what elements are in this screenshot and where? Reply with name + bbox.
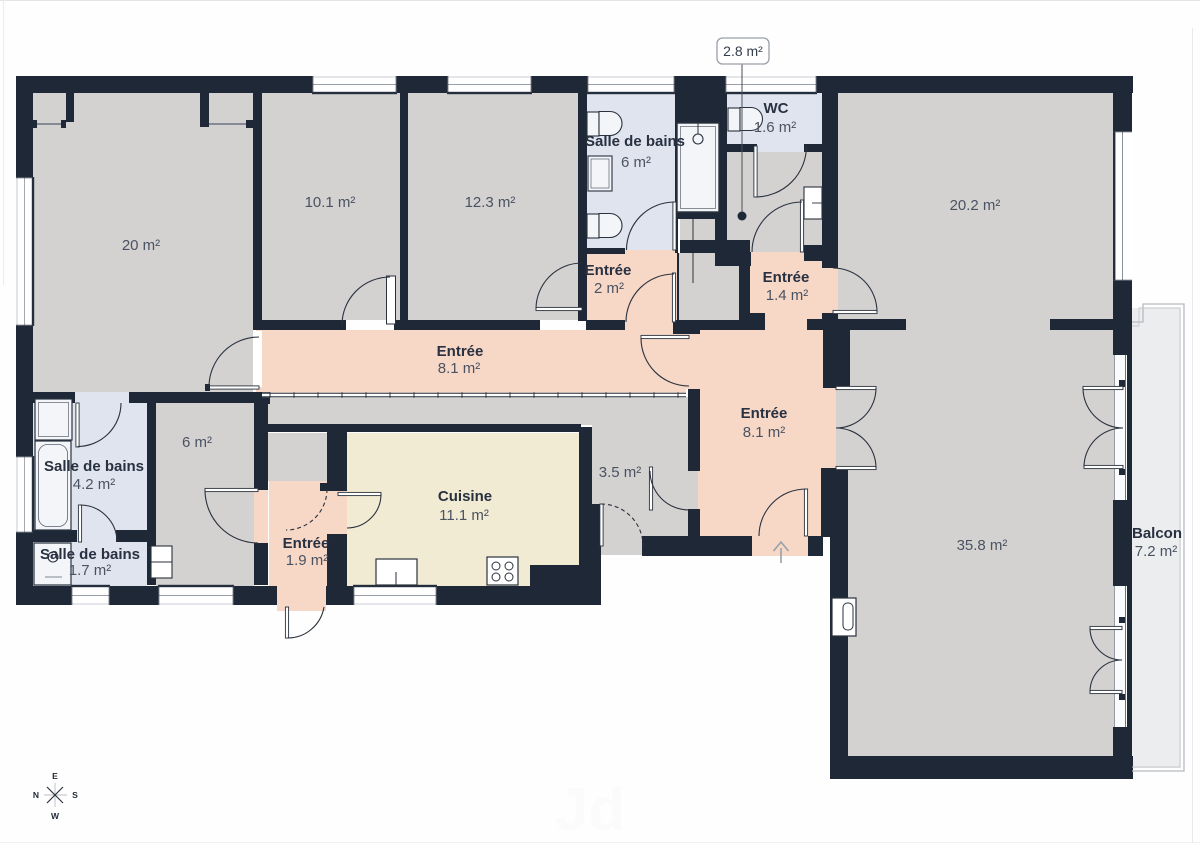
svg-text:N: N (33, 790, 39, 800)
svg-text:Salle de bains: Salle de bains (585, 133, 685, 150)
svg-text:1.4 m²: 1.4 m² (766, 287, 809, 304)
svg-text:Entrée: Entrée (763, 269, 810, 286)
svg-text:4.2 m²: 4.2 m² (73, 476, 116, 493)
svg-text:Cuisine: Cuisine (438, 488, 492, 505)
svg-text:10.1 m²: 10.1 m² (305, 194, 356, 211)
svg-text:Entrée: Entrée (585, 262, 632, 279)
svg-text:S: S (72, 790, 78, 800)
svg-text:1.6 m²: 1.6 m² (754, 119, 797, 136)
svg-text:35.8 m²: 35.8 m² (957, 537, 1008, 554)
svg-text:W: W (51, 811, 60, 821)
svg-text:Entrée: Entrée (741, 405, 788, 422)
svg-text:6 m²: 6 m² (621, 154, 651, 171)
svg-text:2.8 m²: 2.8 m² (723, 43, 763, 59)
svg-text:20 m²: 20 m² (122, 237, 160, 254)
svg-text:11.1 m²: 11.1 m² (439, 507, 489, 524)
svg-text:E: E (52, 771, 58, 781)
svg-text:12.3 m²: 12.3 m² (465, 194, 516, 211)
svg-text:Jd: Jd (555, 776, 625, 843)
svg-text:1.7 m²: 1.7 m² (69, 562, 112, 579)
svg-text:6 m²: 6 m² (182, 434, 212, 451)
svg-text:Salle de bains: Salle de bains (40, 546, 140, 563)
svg-text:Entrée: Entrée (283, 535, 330, 552)
svg-text:Entrée: Entrée (437, 343, 484, 360)
svg-text:Salle de bains: Salle de bains (44, 458, 144, 475)
svg-text:2 m²: 2 m² (594, 280, 624, 297)
svg-text:1.9 m²: 1.9 m² (286, 552, 329, 569)
svg-text:Balcon: Balcon (1132, 525, 1182, 542)
svg-text:WC: WC (764, 100, 789, 117)
svg-text:8.1 m²: 8.1 m² (438, 360, 481, 377)
svg-text:3.5 m²: 3.5 m² (599, 464, 642, 481)
svg-text:7.2 m²: 7.2 m² (1135, 543, 1178, 560)
svg-text:8.1 m²: 8.1 m² (743, 424, 786, 441)
svg-text:20.2 m²: 20.2 m² (950, 197, 1001, 214)
